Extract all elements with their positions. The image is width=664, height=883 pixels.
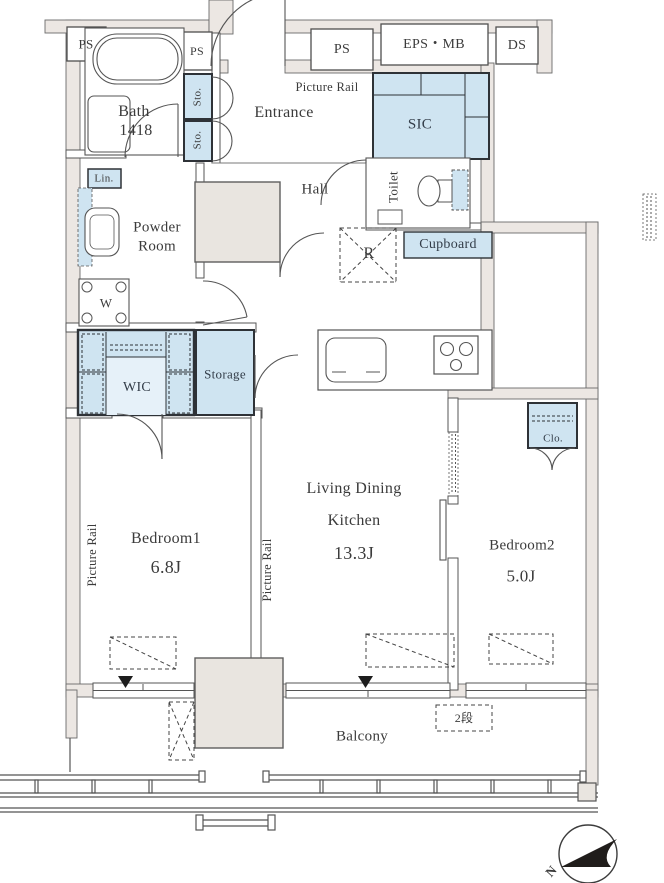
columns [195,182,283,748]
column-balcony [195,658,283,748]
toilet-room [363,158,470,228]
balcony-label: Balcony [336,730,388,745]
powder-room-label-2: Room [138,240,176,255]
clo-door-left [530,448,552,470]
ldk-label-1: Living Dining [306,481,401,497]
hatch-ladder-cap [196,815,203,830]
kitchen-sink [326,338,386,382]
wic-label: WIC [123,381,151,395]
toilet-label: Toilet [387,171,400,203]
bath-size-label: 1418 [119,123,152,139]
bath-label: Bath [118,104,149,120]
bedroom1-area-label: 6.8J [151,558,182,576]
ps-label-corridor: PS [334,43,350,57]
picture-rail-bedroom1-label: Picture Rail [86,524,99,587]
bedroom1-label: Bedroom1 [131,531,201,547]
refrigerator-label: R [364,246,375,262]
toilet-bowl [418,176,440,206]
ps-label-top-left: PS [78,38,93,51]
cupboard-label: Cupboard [419,238,477,252]
kitchen [318,330,492,390]
stove [434,336,478,374]
ds-label: DS [508,39,527,53]
hall-label: Hall [301,183,328,198]
ldk-area-label: 13.3J [334,544,374,562]
clo-door-right [552,448,575,470]
powder-room-label-1: Powder [133,221,181,236]
bedroom2-label: Bedroom2 [489,539,555,554]
two-tier-label: 2段 [455,712,474,724]
wic-door [117,414,162,459]
floor-plan-drawing [0,0,664,883]
balcony-railing [0,738,598,830]
toilet-tank [452,170,468,210]
balcony-partition [578,783,596,801]
hatch-ladder-cap [268,815,275,830]
compass [559,825,617,883]
storage-label: Storage [204,368,246,381]
ldk-label-2: Kitchen [328,513,381,529]
column-hall [195,182,280,262]
linen-label: Lin. [94,174,113,185]
entrance-label: Entrance [254,105,313,121]
sic-label: SIC [408,118,432,133]
floor-plan: PS Bath 1418 PS Sto. Sto. Picture Rail E… [0,0,664,883]
clo-label: Clo. [543,434,563,445]
storage-door [255,355,298,398]
ps-label-bath: PS [190,45,204,57]
picture-rail-ldk-label: Picture Rail [261,539,274,602]
bedroom2-sliding-door [440,500,446,560]
windows [93,683,586,698]
sto-upper-label: Sto. [193,88,204,107]
powder-room-door [203,281,247,317]
picture-rail-entrance-label: Picture Rail [296,81,359,94]
eps-mb-label: EPS・MB [403,38,465,52]
washer-label: W [100,297,113,310]
hall-ldk-door [280,233,324,277]
bedroom2-area-label: 5.0J [506,568,535,585]
sto-lower-label: Sto. [193,131,204,150]
